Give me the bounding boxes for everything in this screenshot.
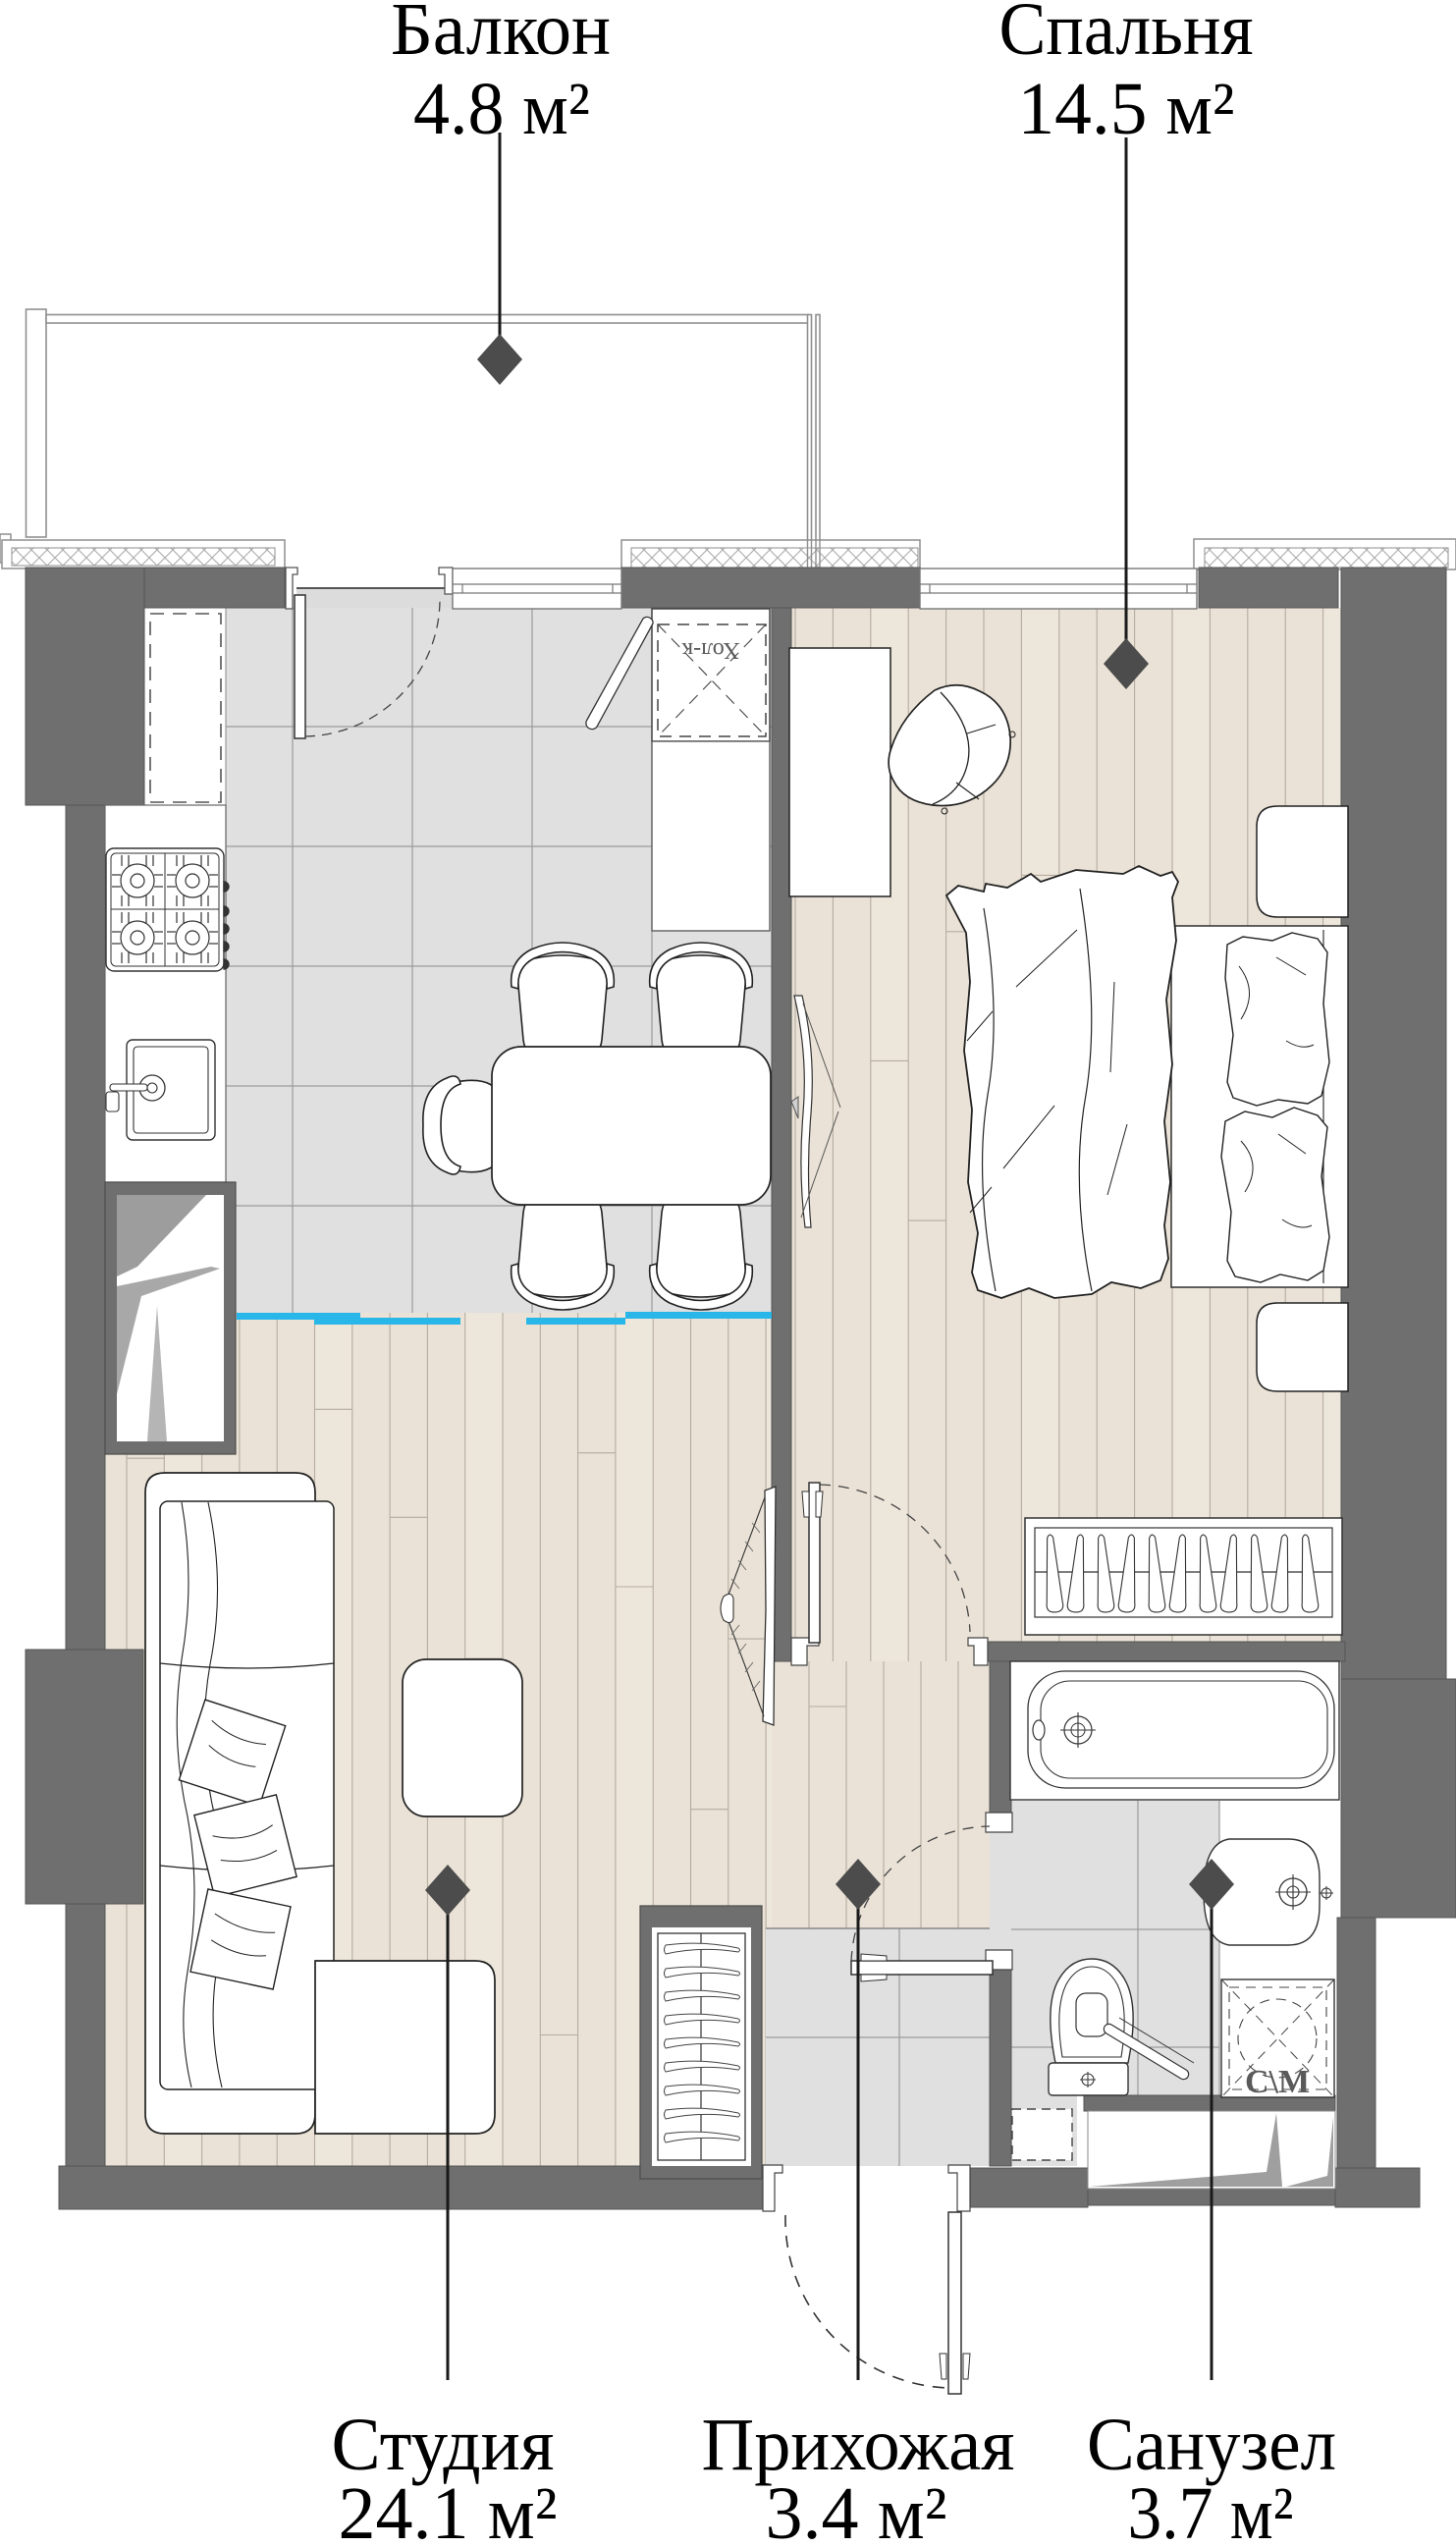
svg-text:С\М: С\М — [1245, 2064, 1310, 2100]
svg-text:Спальня: Спальня — [999, 0, 1254, 71]
svg-text:3.4 м²: 3.4 м² — [766, 2472, 947, 2547]
svg-text:Балкон: Балкон — [391, 0, 611, 71]
svg-text:Хол-к: Хол-к — [681, 637, 739, 663]
svg-text:4.8 м²: 4.8 м² — [413, 68, 590, 150]
svg-text:3.7 м²: 3.7 м² — [1128, 2472, 1294, 2547]
svg-text:24.1 м²: 24.1 м² — [339, 2472, 558, 2547]
